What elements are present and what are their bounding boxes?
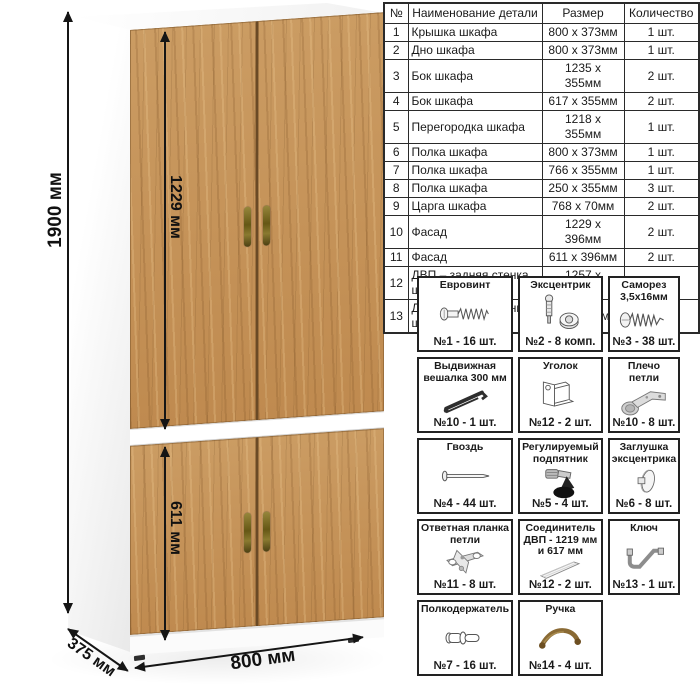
table-cell: 3 шт. bbox=[624, 180, 699, 198]
eccentric-cam-icon bbox=[537, 292, 583, 336]
hardware-item: Ответная планка петли№11 - 8 шт. bbox=[417, 519, 513, 595]
table-cell: 11 bbox=[384, 249, 408, 267]
table-row: 7Полка шкафа766 х 355мм1 шт. bbox=[384, 162, 699, 180]
table-cell: 9 bbox=[384, 198, 408, 216]
hardware-item: Плечо петли№10 - 8 шт. bbox=[608, 357, 681, 433]
table-cell: Полка шкафа bbox=[408, 144, 542, 162]
table-cell: 1235 х 355мм bbox=[542, 60, 624, 93]
hardware-item-title: Евровинт bbox=[440, 280, 491, 292]
euro-screw-icon bbox=[439, 292, 491, 336]
table-cell: 2 шт. bbox=[624, 60, 699, 93]
cam-cap-icon bbox=[627, 465, 661, 498]
hardware-item: Уголок№12 - 2 шт. bbox=[518, 357, 603, 433]
table-cell: 13 bbox=[384, 300, 408, 334]
hardware-item: Регулируемый подпятник№5 - 4 шт. bbox=[518, 438, 603, 514]
table-cell: Полка шкафа bbox=[408, 162, 542, 180]
door-handle bbox=[263, 205, 270, 245]
nail-icon bbox=[440, 454, 490, 498]
hardware-item-title: Эксцентрик bbox=[530, 280, 590, 292]
table-row: 11Фасад611 х 396мм2 шт. bbox=[384, 249, 699, 267]
dimension-label-height: 1900 мм bbox=[45, 172, 67, 248]
table-header-cell: Количество bbox=[624, 3, 699, 24]
table-header-cell: № bbox=[384, 3, 408, 24]
table-cell: Фасад bbox=[408, 216, 542, 249]
wardrobe-door-lower-left bbox=[130, 437, 256, 635]
table-cell: Царга шкафа bbox=[408, 198, 542, 216]
table-cell: Перегородка шкафа bbox=[408, 111, 542, 144]
hardware-item: Евровинт№1 - 16 шт. bbox=[417, 276, 513, 352]
table-cell: 617 х 355мм bbox=[542, 93, 624, 111]
table-cell: 8 bbox=[384, 180, 408, 198]
table-row: 1Крышка шкафа800 х 373мм1 шт. bbox=[384, 24, 699, 42]
table-cell: 10 bbox=[384, 216, 408, 249]
table-cell: 1 шт. bbox=[624, 111, 699, 144]
hardware-item-title: Саморез 3,5х16мм bbox=[612, 280, 677, 303]
table-cell: Фасад bbox=[408, 249, 542, 267]
table-cell: 2 шт. bbox=[624, 216, 699, 249]
adjustable-foot-icon bbox=[540, 465, 580, 498]
wardrobe-door-lower-right bbox=[258, 428, 384, 626]
table-cell: 611 х 396мм bbox=[542, 249, 624, 267]
hardware-item-title: Уголок bbox=[543, 361, 578, 373]
parts-table-header-row: №Наименование деталиРазмерКоличество bbox=[384, 3, 699, 24]
hardware-item-qty: №6 - 8 шт. bbox=[616, 498, 672, 510]
table-cell: 2 шт. bbox=[624, 198, 699, 216]
table-cell: Полка шкафа bbox=[408, 180, 542, 198]
hardware-item-title: Заглушка эксцентрика bbox=[612, 442, 677, 465]
hardware-item: Ключ№13 - 1 шт. bbox=[608, 519, 681, 595]
table-row: 9Царга шкафа768 х 70мм2 шт. bbox=[384, 198, 699, 216]
hardware-item-title: Полкодержатель bbox=[421, 604, 509, 616]
wardrobe-side-panel bbox=[68, 16, 130, 652]
table-cell: 4 bbox=[384, 93, 408, 111]
hardware-item-qty: №2 - 8 комп. bbox=[525, 336, 595, 348]
table-cell: 768 х 70мм bbox=[542, 198, 624, 216]
tapping-screw-icon bbox=[619, 303, 669, 336]
hardware-item: Выдвижная вешалка 300 мм№10 - 1 шт. bbox=[417, 357, 513, 433]
hardware-item-title: Соединитель ДВП - 1219 мм и 617 мм bbox=[522, 523, 599, 558]
table-cell: 5 bbox=[384, 111, 408, 144]
hardware-item-qty: №1 - 16 шт. bbox=[434, 336, 497, 348]
hardware-item-qty: №5 - 4 шт. bbox=[532, 498, 588, 510]
table-row: 10Фасад1229 х 396мм2 шт. bbox=[384, 216, 699, 249]
hardware-item-qty: №7 - 16 шт. bbox=[434, 660, 497, 672]
door-handle bbox=[263, 511, 270, 551]
hardware-item-title: Ручка bbox=[545, 604, 575, 616]
table-cell: 766 х 355мм bbox=[542, 162, 624, 180]
hardware-item-qty: №3 - 38 шт. bbox=[613, 336, 676, 348]
hdf-connector-icon bbox=[535, 558, 585, 579]
hardware-item-qty: №13 - 1 шт. bbox=[613, 579, 676, 591]
pullout-hanger-icon bbox=[440, 384, 490, 417]
table-row: 6Полка шкафа800 х 373мм1 шт. bbox=[384, 144, 699, 162]
table-header-cell: Размер bbox=[542, 3, 624, 24]
wardrobe-front bbox=[130, 12, 384, 655]
table-cell: 12 bbox=[384, 267, 408, 300]
table-cell: 800 х 373мм bbox=[542, 144, 624, 162]
table-row: 8Полка шкафа250 х 355мм3 шт. bbox=[384, 180, 699, 198]
door-handle bbox=[244, 513, 251, 553]
door-handle bbox=[244, 207, 251, 247]
table-cell: 1 шт. bbox=[624, 162, 699, 180]
hardware-item: Саморез 3,5х16мм№3 - 38 шт. bbox=[608, 276, 681, 352]
hardware-item: Полкодержатель№7 - 16 шт. bbox=[417, 600, 513, 676]
hardware-item-qty: №14 - 4 шт. bbox=[529, 660, 592, 672]
hinge-plate-icon bbox=[441, 546, 489, 579]
table-cell: 6 bbox=[384, 144, 408, 162]
dimension-label-lower-door: 611 мм bbox=[166, 501, 184, 555]
wardrobe-door-upper-right bbox=[258, 12, 384, 420]
hardware-item-title: Ключ bbox=[630, 523, 658, 535]
table-cell: 7 bbox=[384, 162, 408, 180]
table-cell: Бок шкафа bbox=[408, 60, 542, 93]
hardware-item-qty: №12 - 2 шт. bbox=[529, 579, 592, 591]
table-cell: 1 шт. bbox=[624, 24, 699, 42]
shelf-pin-icon bbox=[443, 616, 487, 660]
table-cell: 1229 х 396мм bbox=[542, 216, 624, 249]
table-row: 2Дно шкафа800 х 373мм1 шт. bbox=[384, 42, 699, 60]
hinge-arm-icon bbox=[619, 384, 669, 417]
assembly-sheet: 1900 мм 1229 мм 611 мм 800 мм 375 мм №На… bbox=[0, 0, 700, 700]
hardware-item-qty: №10 - 8 шт. bbox=[613, 417, 676, 429]
table-cell: 1 шт. bbox=[624, 144, 699, 162]
hardware-item: Соединитель ДВП - 1219 мм и 617 мм№12 - … bbox=[518, 519, 603, 595]
hardware-item-title: Гвоздь bbox=[447, 442, 484, 454]
hardware-item-title: Ответная планка петли bbox=[421, 523, 509, 546]
hardware-item: Гвоздь№4 - 44 шт. bbox=[417, 438, 513, 514]
dimension-label-upper-door: 1229 мм bbox=[166, 175, 184, 239]
table-cell: 800 х 373мм bbox=[542, 24, 624, 42]
hardware-item: Ручка№14 - 4 шт. bbox=[518, 600, 603, 676]
table-row: 3Бок шкафа1235 х 355мм2 шт. bbox=[384, 60, 699, 93]
table-row: 4Бок шкафа617 х 355мм2 шт. bbox=[384, 93, 699, 111]
table-cell: 1218 х 355мм bbox=[542, 111, 624, 144]
table-header-cell: Наименование детали bbox=[408, 3, 542, 24]
table-cell: 3 bbox=[384, 60, 408, 93]
dimension-arrow-height bbox=[67, 12, 69, 613]
hardware-grid: Евровинт№1 - 16 шт.Эксцентрик№2 - 8 комп… bbox=[417, 276, 661, 676]
table-row: 5Перегородка шкафа1218 х 355мм1 шт. bbox=[384, 111, 699, 144]
hardware-item: Эксцентрик№2 - 8 комп. bbox=[518, 276, 603, 352]
table-cell: 2 шт. bbox=[624, 93, 699, 111]
hardware-item-title: Плечо петли bbox=[612, 361, 677, 384]
wardrobe-door-upper-left bbox=[130, 21, 256, 429]
table-cell: Крышка шкафа bbox=[408, 24, 542, 42]
hardware-item-qty: №10 - 1 шт. bbox=[434, 417, 497, 429]
handle-icon bbox=[535, 616, 585, 660]
hardware-item: Заглушка эксцентрика№6 - 8 шт. bbox=[608, 438, 681, 514]
hardware-item-qty: №11 - 8 шт. bbox=[434, 579, 496, 591]
hardware-item-title: Выдвижная вешалка 300 мм bbox=[421, 361, 509, 384]
table-cell: 2 bbox=[384, 42, 408, 60]
table-cell: 2 шт. bbox=[624, 249, 699, 267]
table-cell: 1 bbox=[384, 24, 408, 42]
hardware-item-qty: №4 - 44 шт. bbox=[434, 498, 497, 510]
hardware-item-qty: №12 - 2 шт. bbox=[529, 417, 592, 429]
table-cell: 1 шт. bbox=[624, 42, 699, 60]
corner-bracket-icon bbox=[536, 373, 584, 417]
table-cell: 250 х 355мм bbox=[542, 180, 624, 198]
table-cell: Бок шкафа bbox=[408, 93, 542, 111]
table-cell: Дно шкафа bbox=[408, 42, 542, 60]
hex-key-icon bbox=[621, 535, 667, 579]
table-cell: 800 х 373мм bbox=[542, 42, 624, 60]
